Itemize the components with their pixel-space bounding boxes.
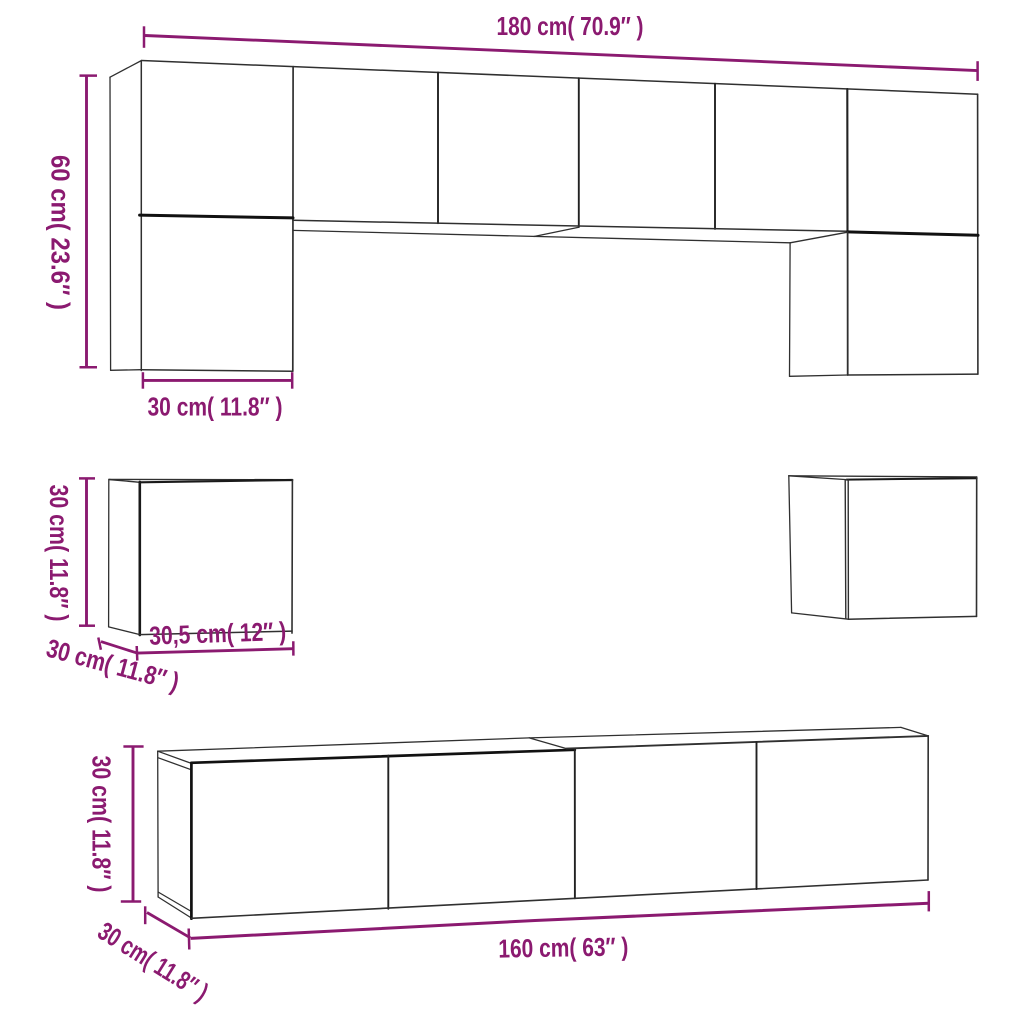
svg-text:30 cm( 11.8″ ): 30 cm( 11.8″ ) [44, 485, 74, 622]
svg-text:60 cm( 23.6″ ): 60 cm( 23.6″ ) [46, 155, 76, 310]
svg-text:30,5 cm( 12″ ): 30,5 cm( 12″ ) [149, 616, 287, 651]
svg-text:30 cm( 11.8″ ): 30 cm( 11.8″ ) [148, 392, 283, 422]
svg-text:160 cm( 63″ ): 160 cm( 63″ ) [498, 931, 629, 963]
svg-text:30 cm( 11.8″ ): 30 cm( 11.8″ ) [87, 756, 117, 893]
svg-text:180 cm( 70.9″ ): 180 cm( 70.9″ ) [497, 11, 644, 41]
